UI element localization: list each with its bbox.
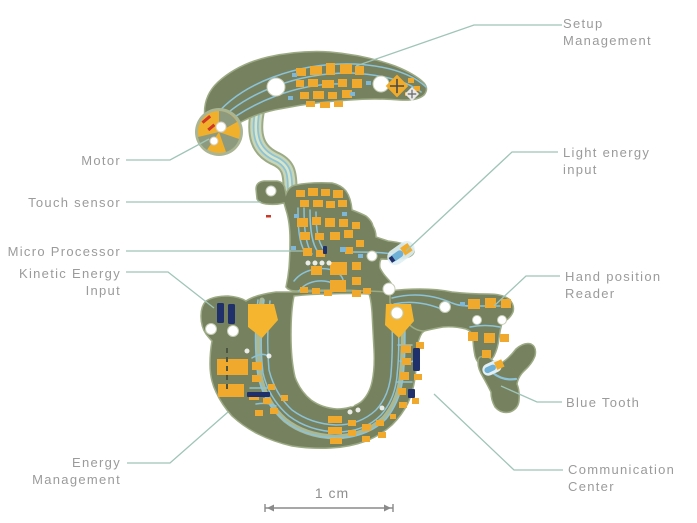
label-line: Micro Processor [8,243,121,260]
label-line: Energy [32,454,121,471]
label-motor: Motor [81,152,121,169]
motor-component [195,108,243,156]
label-light-energy-input: Light energy input [563,144,650,178]
label-touch-sensor: Touch sensor [28,194,121,211]
leader-light-energy [406,152,558,251]
label-energy-management: Energy Management [32,454,121,488]
label-micro-processor: Micro Processor [8,243,121,260]
pcb-board-artwork [0,0,697,523]
label-line: Hand position [565,268,661,285]
label-line: Communication [568,461,675,478]
label-line: Light energy [563,144,650,161]
label-communication-center: Communication Center [568,461,675,495]
pcb-annotated-diagram: Setup Management Motor Touch sensor Micr… [0,0,697,523]
label-line: input [563,161,650,178]
scale-bar-label: 1 cm [296,485,368,501]
label-hand-position-reader: Hand position Reader [565,268,661,302]
red-mark [266,215,271,218]
leader-motor [126,139,209,160]
scale-bar [265,504,393,512]
label-line: Management [32,471,121,488]
label-line: Reader [565,285,661,302]
label-setup-management: Setup Management [563,15,652,49]
label-line: Center [568,478,675,495]
leader-energy-management [127,412,228,463]
label-line: Setup [563,15,652,32]
label-line: Blue Tooth [566,394,640,411]
label-line: Motor [81,152,121,169]
label-line: Input [19,282,121,299]
leader-setup-management [356,25,562,66]
leader-kinetic-energy [126,272,214,308]
label-line: Touch sensor [28,194,121,211]
label-line: Kinetic Energy [19,265,121,282]
label-line: Management [563,32,652,49]
label-kinetic-energy-input: Kinetic Energy Input [19,265,121,299]
label-bluetooth: Blue Tooth [566,394,640,411]
